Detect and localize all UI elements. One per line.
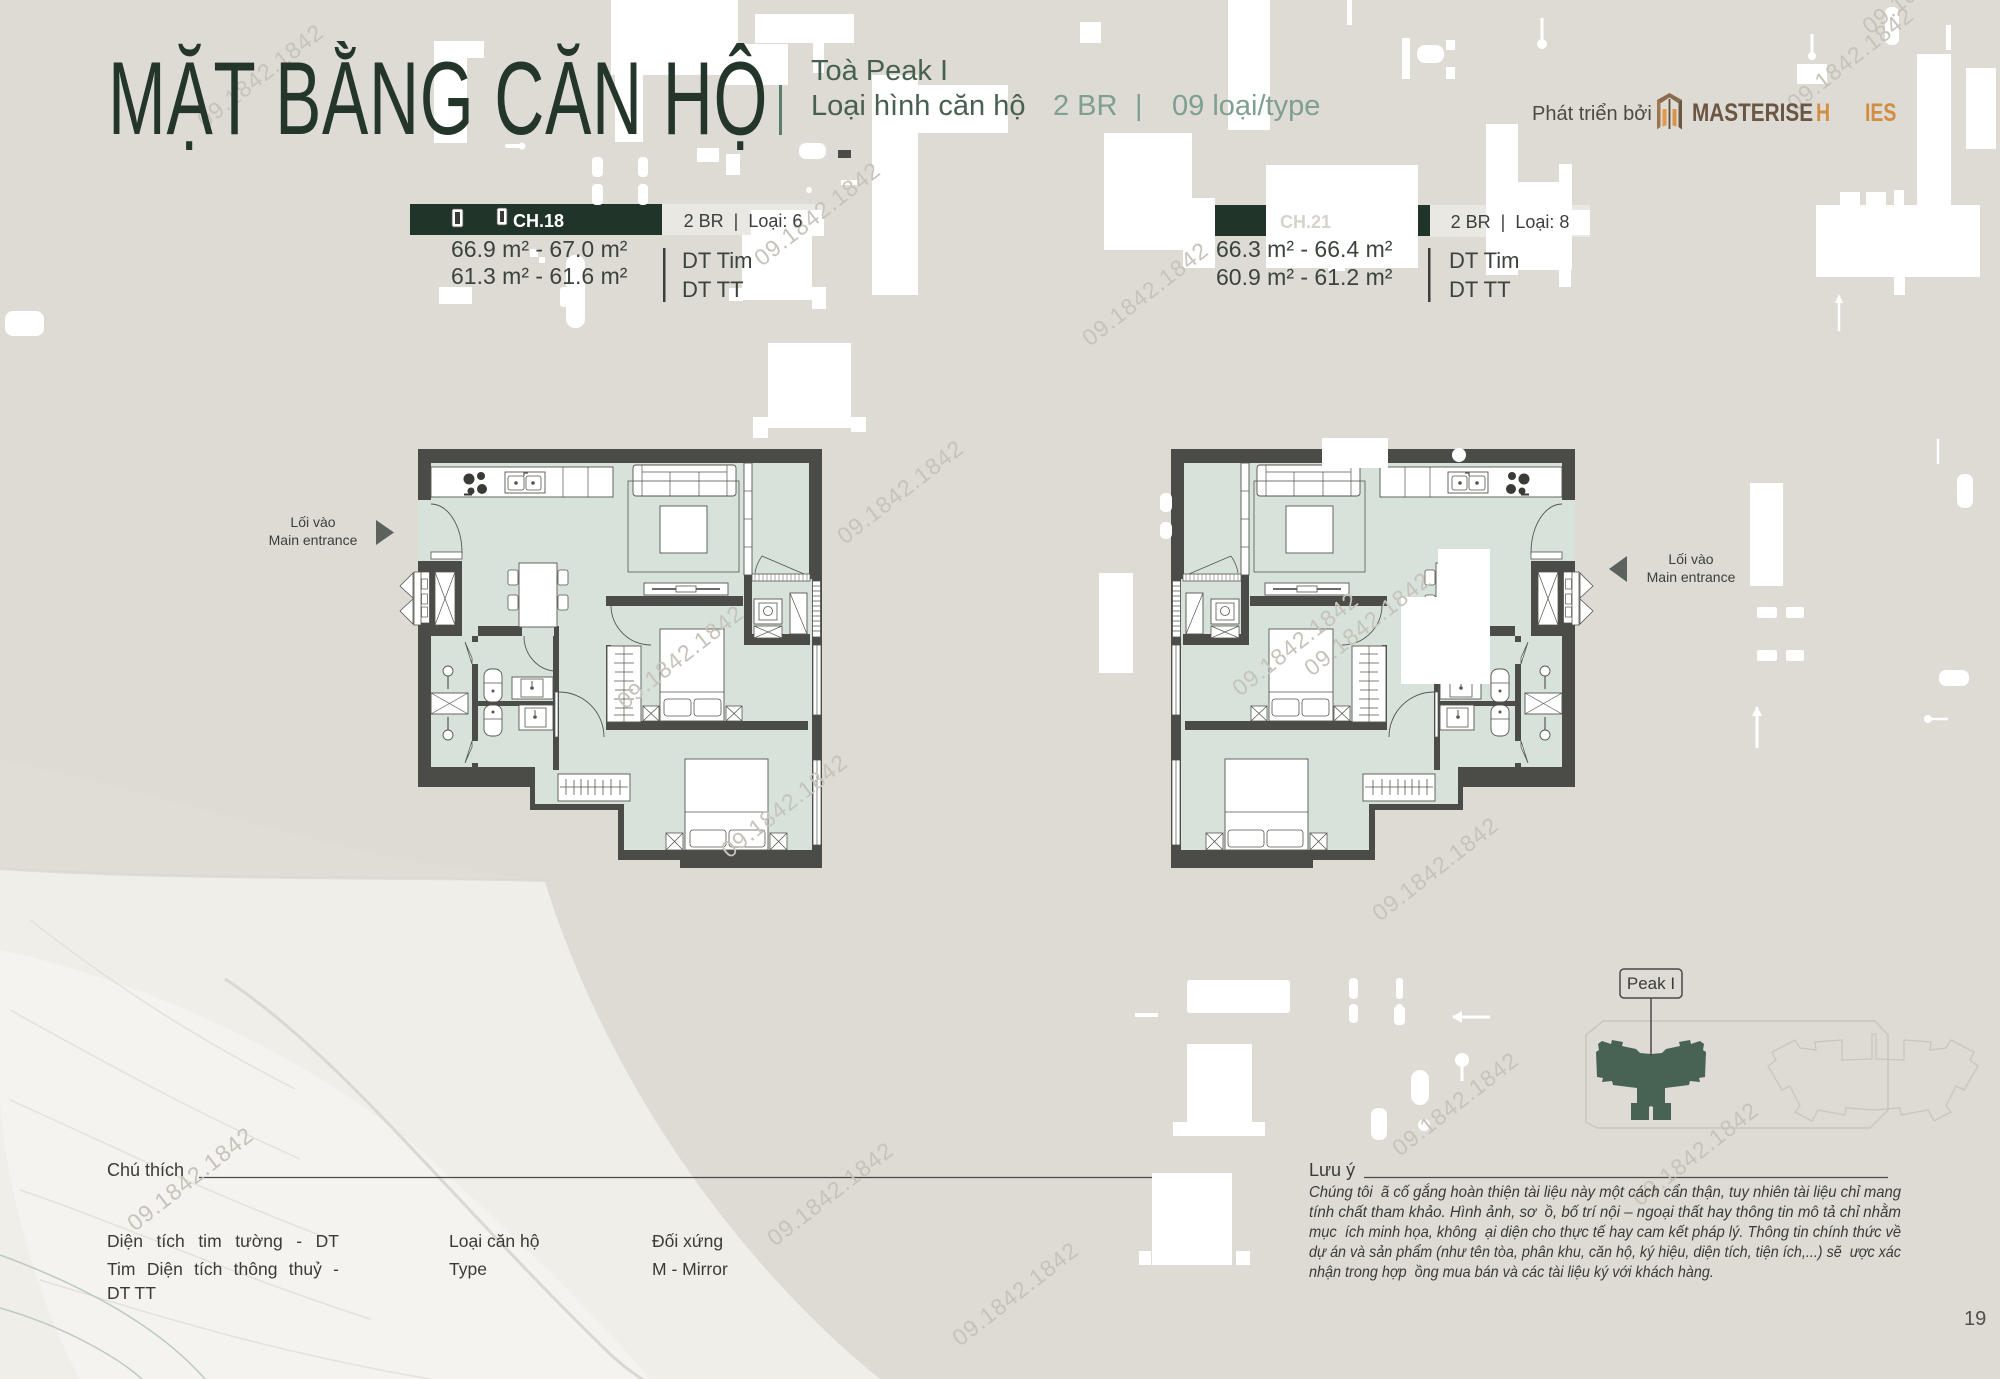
svg-text:09.1842.1842: 09.1842.1842 bbox=[947, 1236, 1083, 1351]
svg-text:09.1842.1842: 09.1842.1842 bbox=[832, 434, 968, 549]
svg-text:09.1842.1842: 09.1842.1842 bbox=[1387, 1046, 1523, 1161]
svg-text:09.1842.1842: 09.1842.1842 bbox=[762, 1136, 898, 1251]
svg-text:09.1842.1842: 09.1842.1842 bbox=[1857, 0, 1993, 39]
svg-text:09.1842.1842: 09.1842.1842 bbox=[1077, 236, 1213, 351]
svg-text:09.1842.1842: 09.1842.1842 bbox=[1367, 811, 1503, 926]
